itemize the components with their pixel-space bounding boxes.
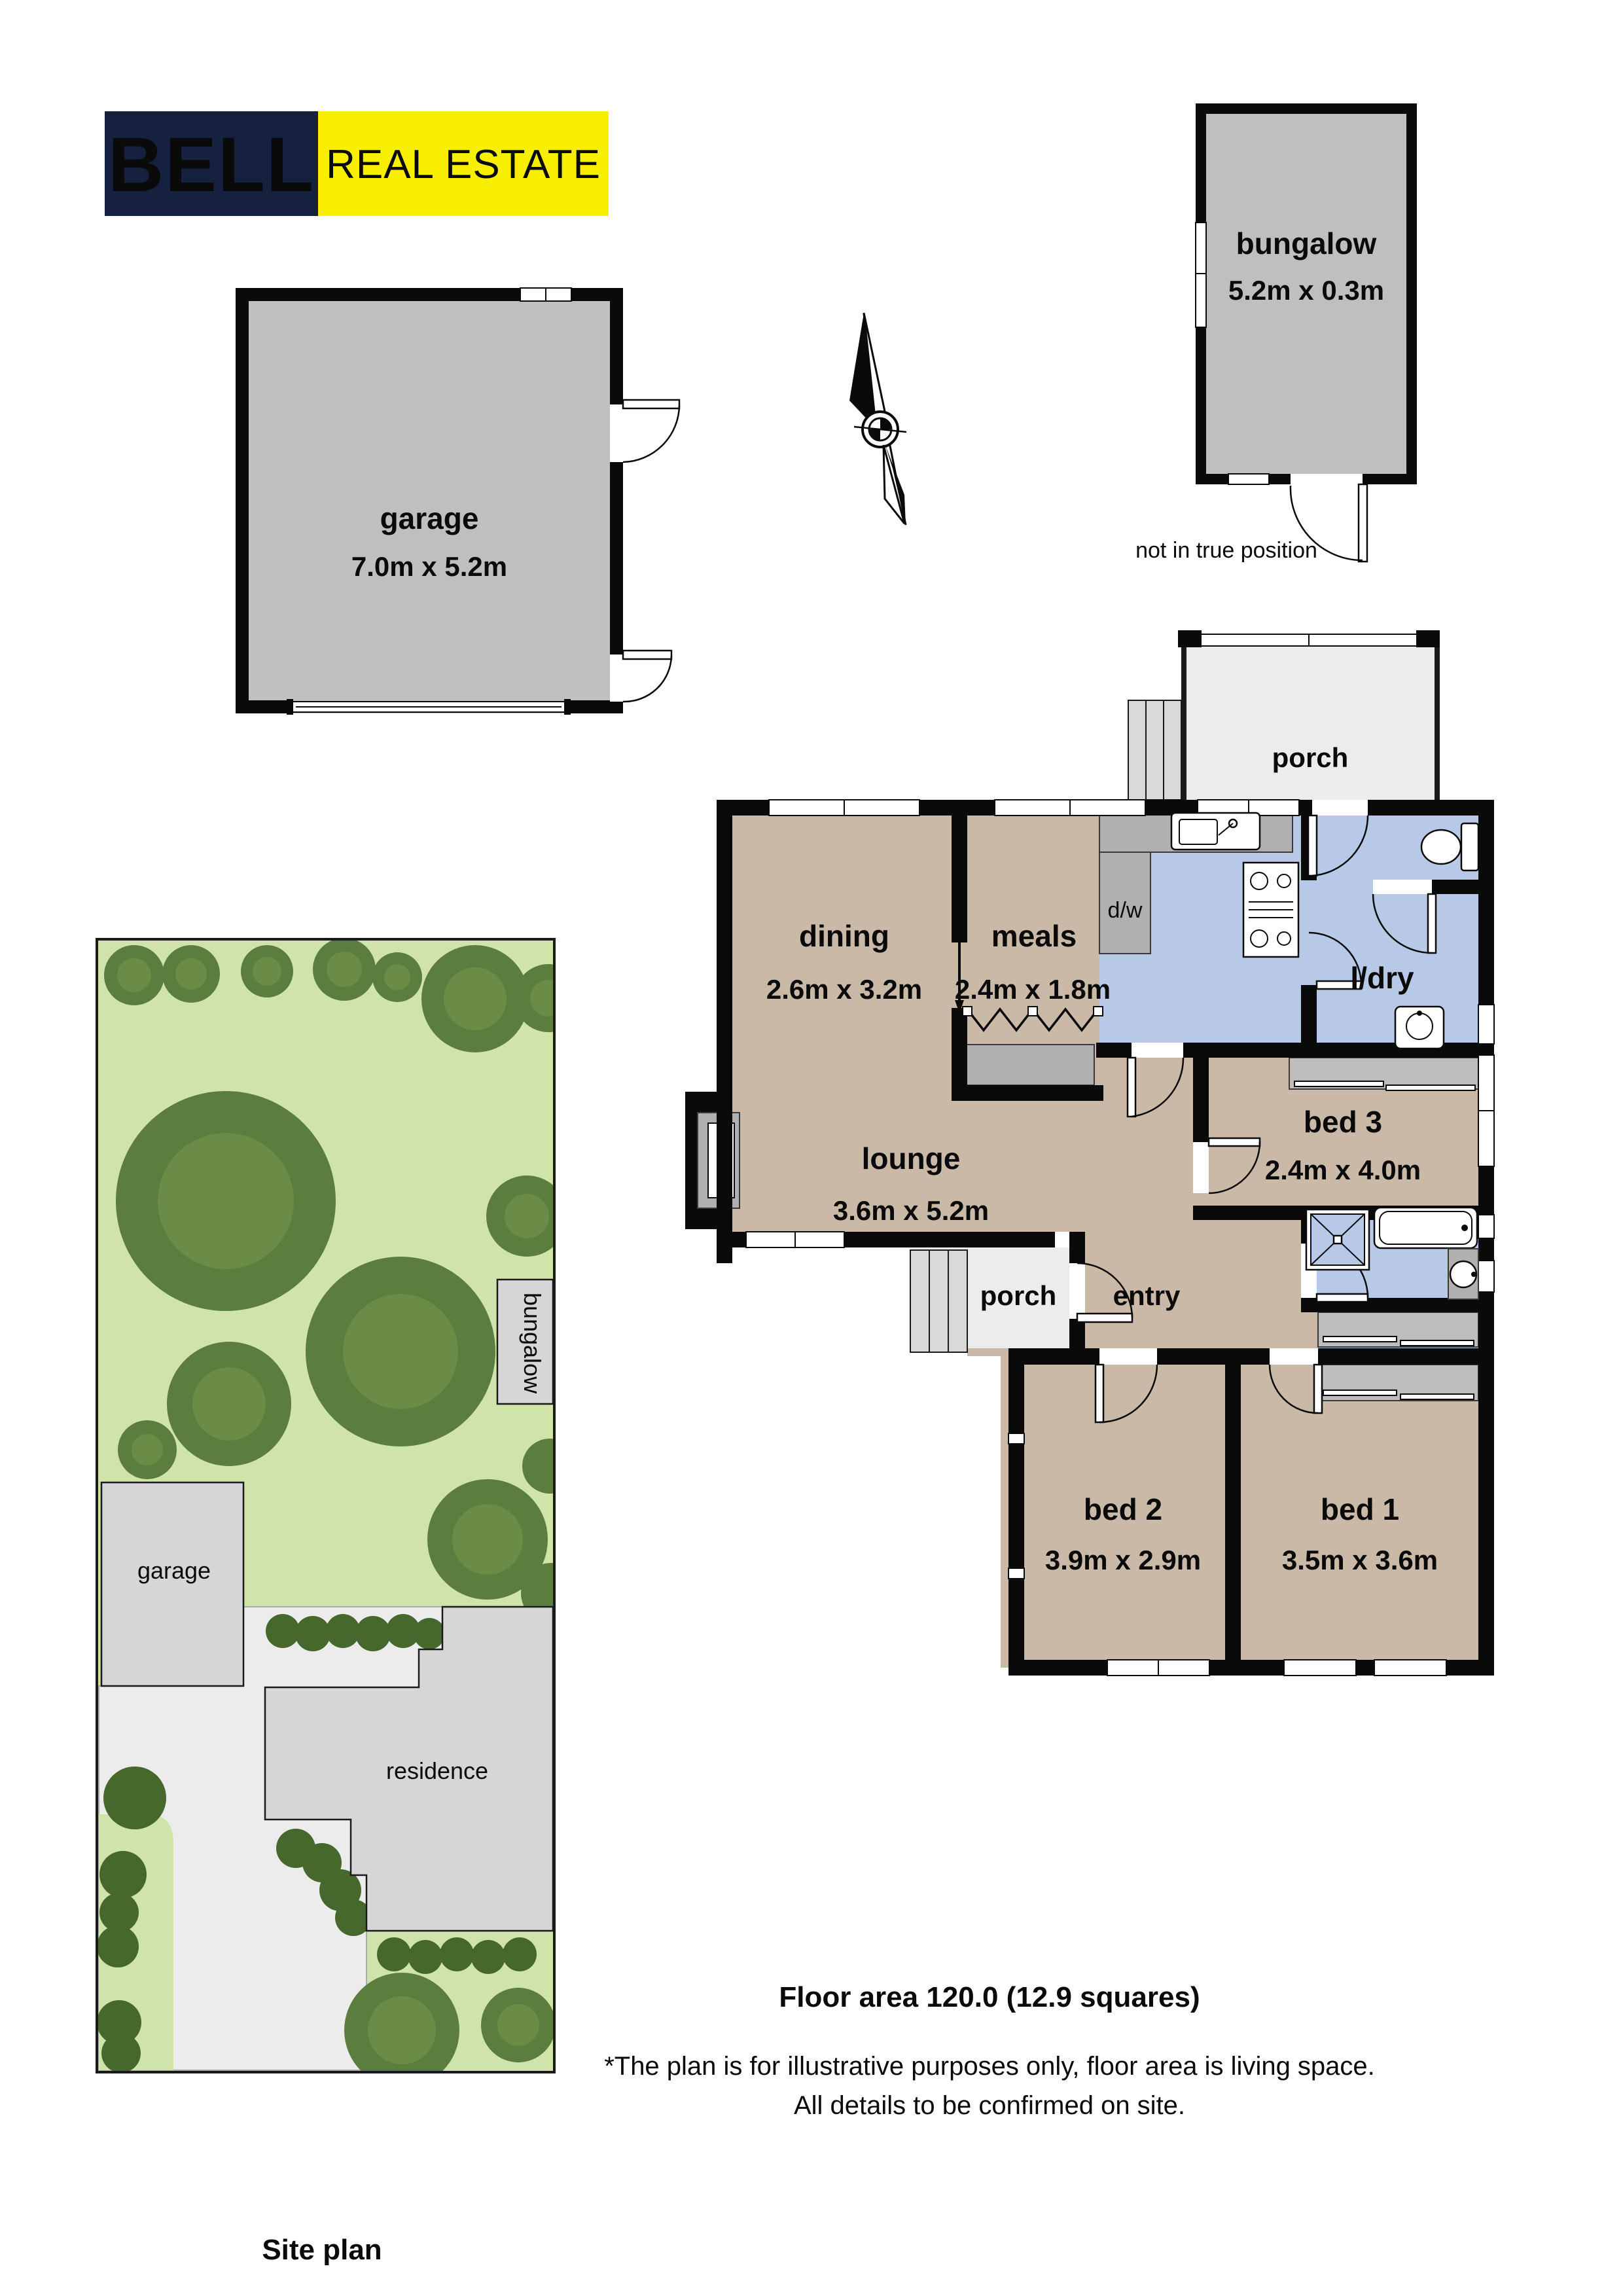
garage-dims: 7.0m x 5.2m [351, 551, 507, 582]
shower [1306, 1210, 1369, 1270]
meals-label: meals [991, 919, 1077, 953]
brand-logo: BELL REAL ESTATE [105, 111, 609, 216]
logo-brand-text: BELL [108, 122, 315, 208]
bed1-robe [1318, 1365, 1478, 1401]
garage-floor [236, 288, 623, 713]
front-porch-label: porch [980, 1280, 1057, 1311]
garage-side-door [610, 400, 679, 462]
dishwasher-label: d/w [1108, 898, 1143, 923]
bathroom-linen [1318, 1312, 1478, 1347]
laundry-label: l/dry [1350, 961, 1414, 995]
site-garage [101, 1482, 243, 1686]
rear-porch-label: porch [1272, 742, 1349, 773]
lounge-entry-opening [1055, 1232, 1069, 1247]
site-bungalow-label: bungalow [519, 1293, 546, 1394]
bed1-label: bed 1 [1321, 1492, 1399, 1526]
floor-area-text: Floor area 120.0 (12.9 squares) [779, 1981, 1200, 2013]
rear-porch-steps [1128, 700, 1181, 800]
garage-window [520, 288, 571, 301]
meals-dims: 2.4m x 1.8m [955, 974, 1111, 1005]
floor-plan-page: BELL REAL ESTATE [0, 0, 1623, 2296]
house-plan: porch [685, 630, 1494, 1676]
bathtub [1374, 1208, 1477, 1248]
garage-plan: garage 7.0m x 5.2m [236, 288, 679, 715]
rear-porch: porch [1128, 630, 1440, 800]
bed2-dims: 3.9m x 2.9m [1045, 1545, 1201, 1575]
site-residence-label: residence [386, 1757, 488, 1784]
bungalow-dims: 5.2m x 0.3m [1228, 275, 1384, 306]
servery-bench [966, 1045, 1094, 1085]
site-plan-title: Site plan [262, 2234, 382, 2266]
garage-roller-door [287, 699, 571, 715]
disclaimer-line-1: *The plan is for illustrative purposes o… [604, 2052, 1375, 2081]
bungalow-label: bungalow [1236, 226, 1377, 260]
kitchen-sink [1171, 813, 1260, 850]
stove [1243, 863, 1298, 957]
vanity-basin [1448, 1249, 1478, 1299]
entry-label: entry [1113, 1280, 1181, 1311]
site-garage-label: garage [137, 1557, 211, 1584]
laundry-trough [1395, 1007, 1444, 1049]
bed3-label: bed 3 [1304, 1105, 1382, 1139]
dining-label: dining [799, 919, 889, 953]
dining-dims: 2.6m x 3.2m [766, 974, 922, 1005]
disclaimer-line-2: All details to be confirmed on site. [794, 2091, 1185, 2120]
lounge-label: lounge [862, 1141, 961, 1175]
bed3-robe [1289, 1058, 1478, 1090]
front-porch-steps [910, 1250, 967, 1352]
bed2-label: bed 2 [1084, 1492, 1162, 1526]
north-arrow-icon [849, 313, 906, 525]
bed3-dims: 2.4m x 4.0m [1265, 1155, 1421, 1185]
garage-label: garage [380, 501, 479, 535]
garage-rear-door [610, 651, 671, 702]
site-plan: garage bungalow residence Site plan [97, 938, 582, 2266]
bed1-dims: 3.5m x 3.6m [1282, 1545, 1438, 1575]
lounge-dims: 3.6m x 5.2m [833, 1195, 989, 1226]
bungalow-plan: bungalow 5.2m x 0.3m not in true positio… [1135, 103, 1417, 563]
bungalow-note: not in true position [1135, 538, 1317, 563]
footer: Floor area 120.0 (12.9 squares) *The pla… [604, 1981, 1375, 2120]
logo-tagline-text: REAL ESTATE [326, 142, 601, 187]
